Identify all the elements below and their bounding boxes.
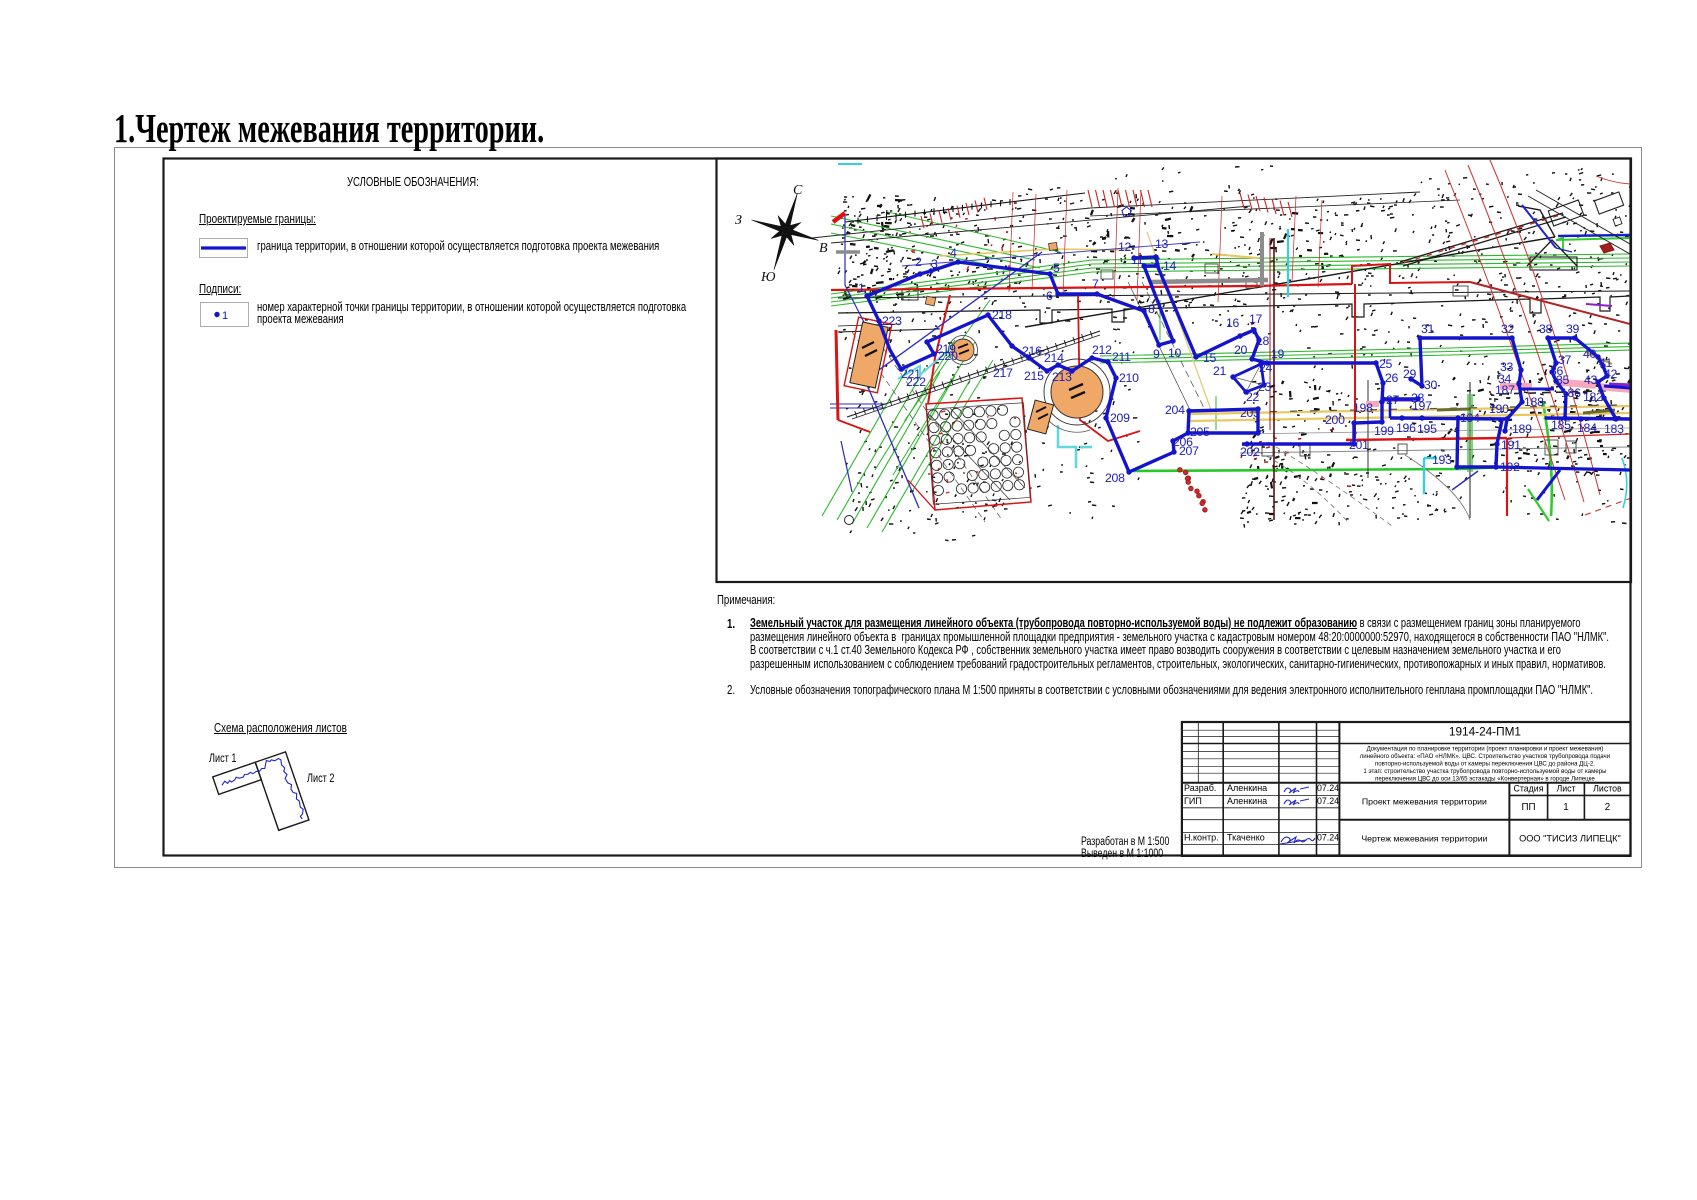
svg-text:В: В [819, 241, 828, 256]
svg-text:Ткаченко: Ткаченко [1227, 833, 1265, 843]
svg-text:43: 43 [1584, 373, 1598, 387]
svg-text:223: 223 [882, 314, 902, 328]
svg-text:19: 19 [1271, 347, 1285, 361]
svg-text:Лист: Лист [1556, 784, 1575, 794]
svg-text:202: 202 [1240, 445, 1260, 459]
svg-text:07.24: 07.24 [1317, 833, 1339, 843]
svg-text:ПП: ПП [1521, 802, 1535, 813]
svg-text:6: 6 [1046, 289, 1053, 303]
svg-text:210: 210 [1119, 371, 1139, 385]
svg-text:15: 15 [1203, 351, 1217, 365]
svg-text:10: 10 [1168, 346, 1182, 360]
svg-text:39: 39 [1566, 322, 1580, 336]
svg-text:182: 182 [1583, 390, 1603, 404]
svg-text:1914-24-ПМ1: 1914-24-ПМ1 [1449, 725, 1521, 739]
svg-text:196: 196 [1396, 421, 1416, 435]
svg-text:07.24: 07.24 [1317, 783, 1339, 793]
svg-text:18: 18 [1256, 334, 1270, 348]
svg-text:ГИП: ГИП [1184, 796, 1202, 806]
svg-text:192: 192 [1500, 460, 1520, 474]
svg-text:12: 12 [1118, 240, 1132, 254]
svg-text:185: 185 [1551, 418, 1571, 432]
svg-text:7: 7 [1092, 277, 1099, 291]
svg-text:207: 207 [1179, 444, 1199, 458]
svg-text:21: 21 [1213, 364, 1227, 378]
svg-text:переключения ЦВС до оси 13/65: переключения ЦВС до оси 13/65 эстакады «… [1375, 776, 1595, 783]
svg-text:29: 29 [1403, 367, 1417, 381]
svg-text:Ю: Ю [760, 270, 776, 285]
svg-text:204: 204 [1165, 403, 1185, 417]
svg-text:31: 31 [1421, 322, 1435, 336]
svg-text:32: 32 [1501, 322, 1515, 336]
svg-text:201: 201 [1349, 438, 1369, 452]
svg-text:Стадия: Стадия [1514, 784, 1544, 794]
svg-text:222: 222 [906, 375, 926, 389]
svg-text:Н.контр.: Н.контр. [1184, 833, 1219, 843]
svg-text:Листов: Листов [1593, 784, 1622, 794]
svg-text:188: 188 [1524, 395, 1544, 409]
svg-text:189: 189 [1512, 422, 1532, 436]
svg-text:190: 190 [1489, 402, 1509, 416]
svg-text:2: 2 [915, 255, 922, 269]
svg-text:209: 209 [1110, 411, 1130, 425]
svg-text:5: 5 [1053, 261, 1060, 275]
svg-text:217: 217 [993, 366, 1013, 380]
svg-text:27: 27 [1386, 393, 1400, 407]
svg-text:16: 16 [1226, 316, 1240, 330]
svg-text:Аленкина: Аленкина [1227, 796, 1267, 806]
svg-text:218: 218 [992, 308, 1012, 322]
svg-text:25: 25 [1379, 357, 1393, 371]
svg-text:200: 200 [1325, 413, 1345, 427]
svg-text:40: 40 [1583, 347, 1597, 361]
svg-text:С: С [793, 183, 803, 198]
svg-text:191: 191 [1501, 438, 1521, 452]
svg-text:ООО "ТИСИЗ ЛИПЕЦК": ООО "ТИСИЗ ЛИПЕЦК" [1519, 834, 1621, 844]
svg-text:13: 13 [1155, 237, 1169, 251]
svg-text:183: 183 [1604, 422, 1624, 436]
svg-text:1 этап: строительство участка: 1 этап: строительство участка трубопрово… [1363, 768, 1606, 775]
svg-text:1: 1 [858, 281, 865, 295]
svg-text:199: 199 [1374, 424, 1394, 438]
svg-text:17: 17 [1249, 312, 1263, 326]
svg-text:212: 212 [1092, 343, 1112, 357]
svg-text:193: 193 [1432, 453, 1452, 467]
svg-text:38: 38 [1539, 322, 1553, 336]
svg-text:Чертеж межевания территории: Чертеж межевания территории [1361, 834, 1487, 844]
svg-text:187: 187 [1495, 383, 1515, 397]
svg-text:215: 215 [1024, 369, 1044, 383]
svg-text:30: 30 [1424, 378, 1438, 392]
svg-text:1: 1 [222, 310, 228, 322]
svg-text:198: 198 [1353, 401, 1373, 415]
svg-text:20: 20 [1234, 343, 1248, 357]
svg-text:14: 14 [1163, 259, 1177, 273]
svg-text:07.24: 07.24 [1317, 796, 1339, 806]
svg-text:23: 23 [1258, 380, 1272, 394]
svg-text:Проект межевания территории: Проект межевания территории [1362, 797, 1487, 807]
svg-text:З: З [735, 213, 742, 228]
svg-text:1: 1 [1563, 802, 1568, 813]
svg-text:195: 195 [1417, 422, 1437, 436]
svg-text:3: 3 [931, 257, 938, 271]
svg-text:2: 2 [1605, 802, 1610, 813]
svg-text:205: 205 [1190, 425, 1210, 439]
svg-text:линейного объекта: «ПАО «НЛМК»: линейного объекта: «ПАО «НЛМК». ЦВС. Стр… [1360, 753, 1610, 760]
svg-text:186: 186 [1561, 386, 1581, 400]
svg-text:Документация по планировке тер: Документация по планировке территории (п… [1367, 746, 1604, 753]
svg-text:11: 11 [1131, 253, 1144, 267]
svg-text:220: 220 [938, 349, 958, 363]
svg-text:8: 8 [1148, 302, 1155, 316]
svg-text:203: 203 [1240, 406, 1260, 420]
svg-text:9: 9 [1153, 347, 1160, 361]
svg-text:повторно-используемой воды от: повторно-используемой воды от камеры пер… [1375, 761, 1595, 768]
svg-text:197: 197 [1412, 399, 1432, 413]
svg-text:214: 214 [1044, 351, 1064, 365]
svg-text:24: 24 [1259, 361, 1273, 375]
svg-text:194: 194 [1460, 411, 1480, 425]
svg-text:216: 216 [1022, 344, 1042, 358]
svg-text:26: 26 [1385, 371, 1399, 385]
svg-text:208: 208 [1105, 471, 1125, 485]
svg-text:213: 213 [1052, 370, 1072, 384]
svg-text:Разраб.: Разраб. [1184, 783, 1216, 793]
svg-text:184: 184 [1577, 421, 1597, 435]
svg-text:Аленкина: Аленкина [1227, 783, 1267, 793]
svg-text:4: 4 [950, 246, 957, 260]
svg-text:211: 211 [1112, 350, 1131, 364]
svg-text:37: 37 [1558, 353, 1572, 367]
svg-text:42: 42 [1604, 367, 1618, 381]
